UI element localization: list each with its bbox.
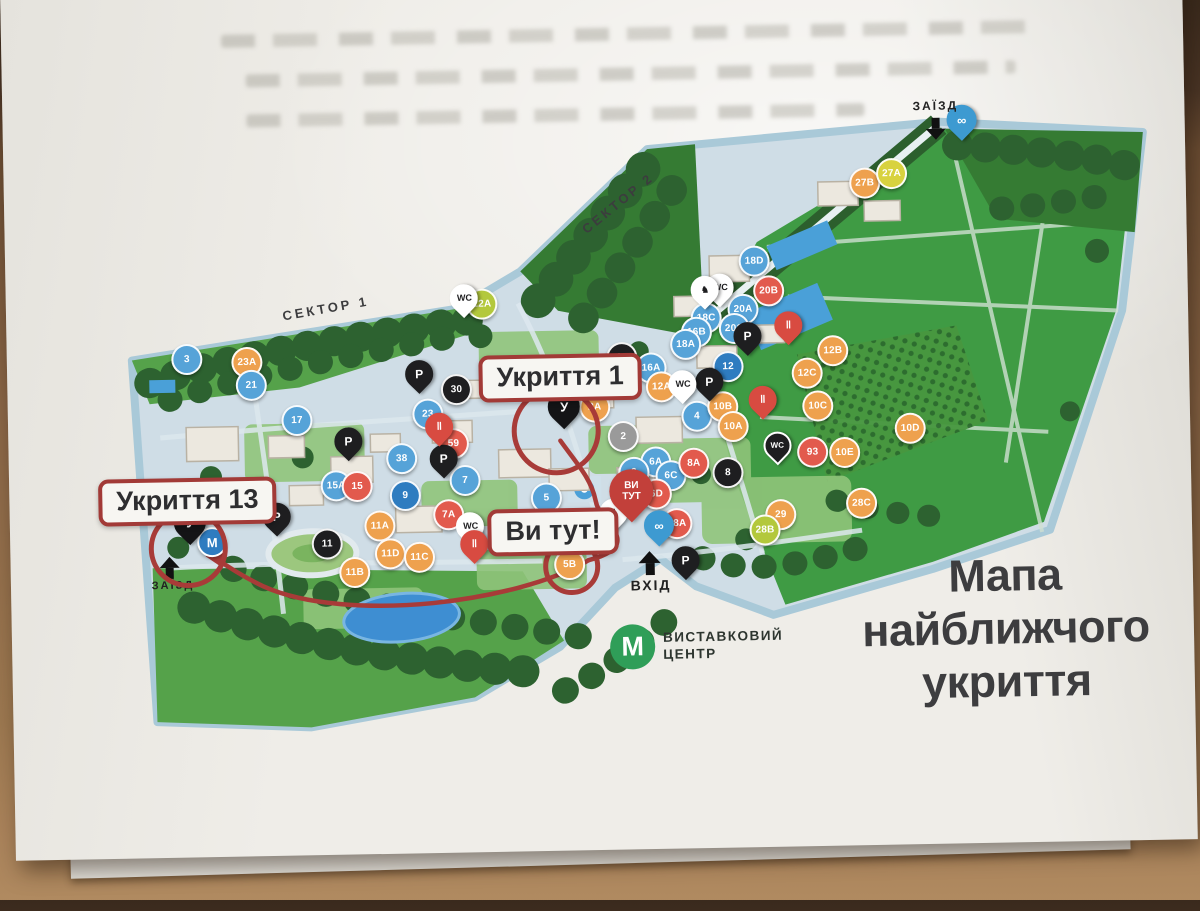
you-are-here-callout: Ви тут! (487, 507, 619, 556)
printed-map-sheet: СЕКТОР 1 СЕКТОР 2 ЗАЇЗД ЗАЇЗД ВХІД 27B27… (0, 0, 1198, 861)
shelter-highlight-rings (0, 0, 1200, 911)
photo-of-shelter-map: { "photo": { "title_lines": ["Мапа", "на… (0, 0, 1200, 900)
shelter1-callout: Укриття 1 (478, 353, 642, 403)
shelter13-callout: Укриття 13 (98, 476, 277, 526)
